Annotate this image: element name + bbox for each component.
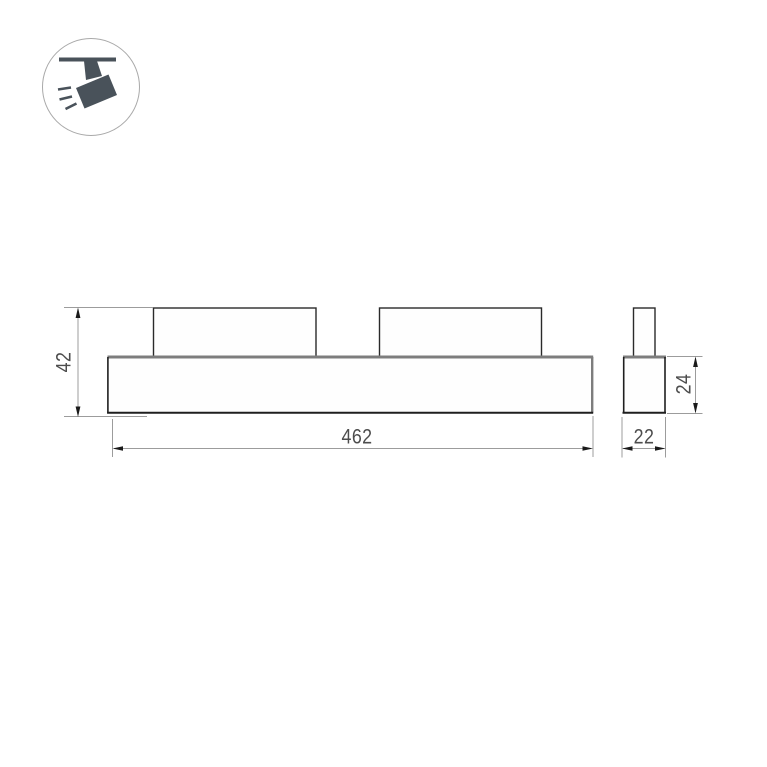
dim-22-arrow-left [622,446,633,451]
icon-light-rays [58,88,77,110]
side-body [623,357,666,413]
dim-462-arrow-left [113,446,124,451]
front-connector-left [154,308,317,357]
front-connector-right [380,308,542,357]
icon-lamp-head [76,75,117,109]
front-width-value: 462 [341,426,372,447]
dim-462-arrow-right [583,446,594,451]
icon-track-rail [59,58,116,62]
front-height-value: 42 [54,352,75,373]
dim-42-arrow-down [76,407,81,418]
dim-22-arrow-right [655,446,666,451]
side-height-value: 24 [673,374,694,395]
dim-42-arrow-up [76,308,81,319]
technical-drawing-canvas [0,0,767,767]
front-view [107,308,593,413]
product-dimension-image: 42 462 24 22 [0,0,767,767]
side-view [623,308,667,413]
dim-24-arrow-up [693,357,698,368]
side-connector [634,308,656,357]
front-body [108,357,594,413]
track-spotlight-icon [43,39,140,136]
icon-mount-stem [84,61,102,80]
side-width-value: 22 [633,426,654,447]
dim-24-arrow-down [693,403,698,414]
